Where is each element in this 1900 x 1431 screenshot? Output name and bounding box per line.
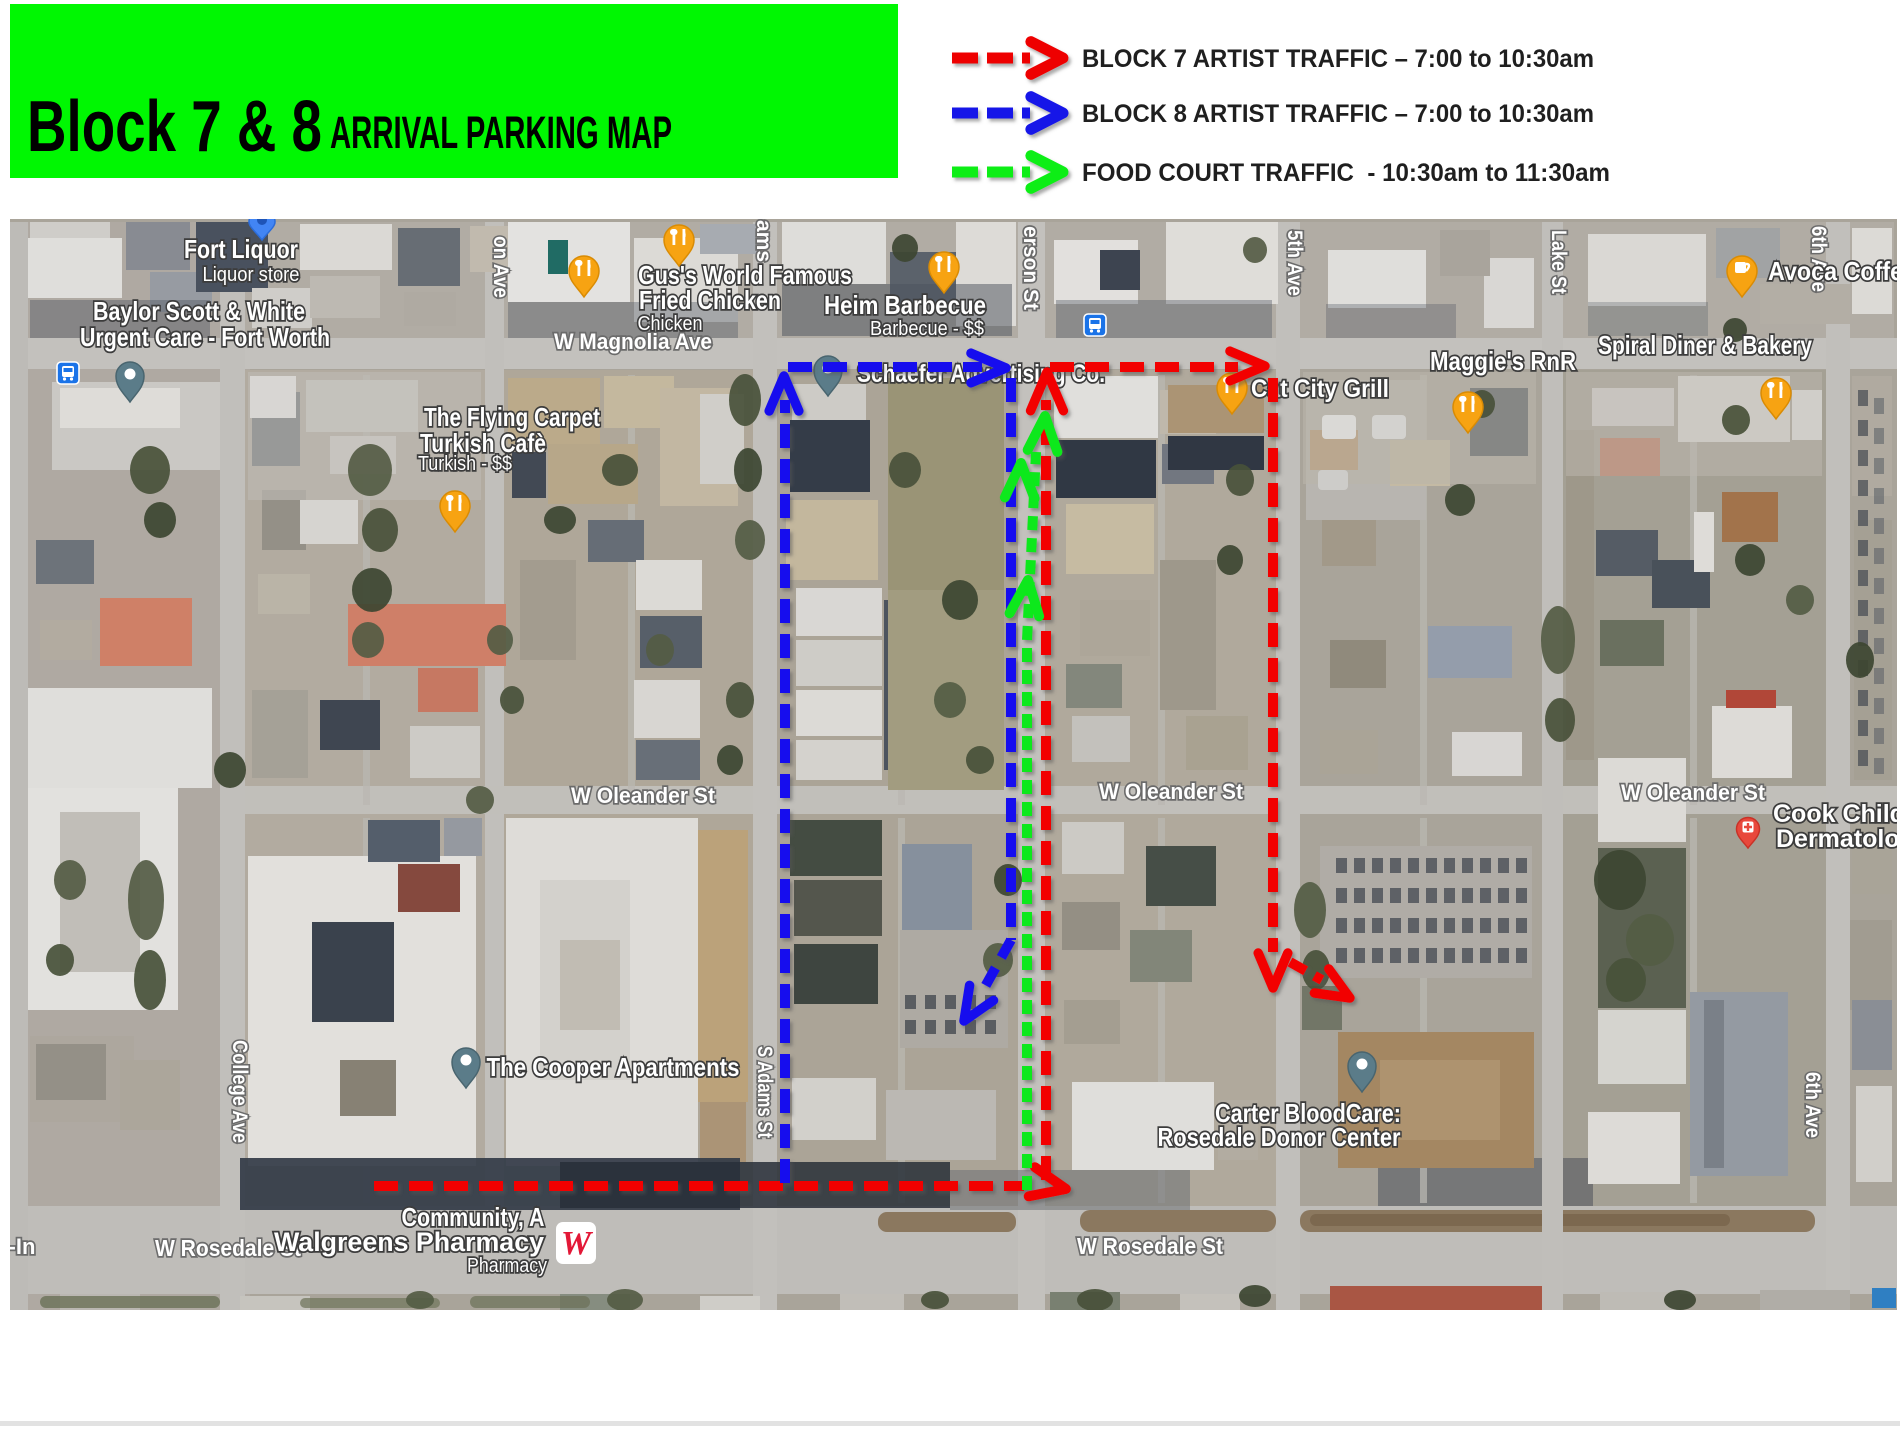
svg-text:Avoca Coffee: Avoca Coffee bbox=[1768, 256, 1900, 286]
svg-text:W Oleander St: W Oleander St bbox=[1099, 779, 1244, 804]
svg-text:Block 7 & 8: Block 7 & 8 bbox=[27, 87, 322, 167]
svg-text:Urgent Care - Fort Worth: Urgent Care - Fort Worth bbox=[80, 322, 330, 352]
svg-text:Heim Barbecue: Heim Barbecue bbox=[824, 290, 986, 320]
svg-text:FOOD COURT TRAFFIC - 10:30am: FOOD COURT TRAFFIC - 10:30am to 11:30am bbox=[1082, 159, 1610, 187]
svg-text:BLOCK 7 ARTIST TRAFFIC – 7:00: BLOCK 7 ARTIST TRAFFIC – 7:00 to 10:30am bbox=[1082, 45, 1594, 73]
svg-text:erson St: erson St bbox=[1019, 226, 1042, 310]
svg-text:ams: ams bbox=[752, 220, 775, 262]
svg-text:Fried Chicken: Fried Chicken bbox=[639, 285, 781, 315]
svg-text:BLOCK 8 ARTIST TRAFFIC – 7:00: BLOCK 8 ARTIST TRAFFIC – 7:00 to 10:30am bbox=[1082, 100, 1594, 128]
svg-text:W Oleander St: W Oleander St bbox=[571, 783, 716, 808]
svg-text:W: W bbox=[561, 1225, 594, 1262]
svg-text:Lake St: Lake St bbox=[1547, 230, 1570, 294]
svg-text:Turkish - $$: Turkish - $$ bbox=[418, 453, 512, 475]
svg-text:5th Ave: 5th Ave bbox=[1283, 230, 1306, 296]
svg-text:on Ave: on Ave bbox=[489, 236, 512, 298]
svg-text:Spiral Diner & Bakery: Spiral Diner & Bakery bbox=[1598, 330, 1812, 360]
svg-text:W Oleander St: W Oleander St bbox=[1621, 780, 1766, 805]
svg-text:Liquor store: Liquor store bbox=[203, 264, 300, 286]
svg-text:College Ave: College Ave bbox=[228, 1040, 251, 1143]
svg-text:ARRIVAL PARKING MAP: ARRIVAL PARKING MAP bbox=[330, 107, 672, 158]
svg-text:Walgreens Pharmacy: Walgreens Pharmacy bbox=[274, 1227, 544, 1257]
svg-text:Chicken: Chicken bbox=[638, 313, 703, 335]
svg-text:The Cooper Apartments: The Cooper Apartments bbox=[487, 1052, 740, 1082]
svg-text:Barbecue - $$: Barbecue - $$ bbox=[870, 318, 984, 340]
svg-text:Maggie's RnR: Maggie's RnR bbox=[1430, 346, 1576, 376]
svg-text:Rosedale Donor Center: Rosedale Donor Center bbox=[1158, 1122, 1401, 1152]
svg-text:6th Ave: 6th Ave bbox=[1801, 1072, 1824, 1138]
svg-text:Pharmacy: Pharmacy bbox=[467, 1255, 547, 1277]
svg-text:Dermatolog: Dermatolog bbox=[1776, 825, 1900, 853]
svg-text:-In: -In bbox=[9, 1234, 36, 1259]
svg-text:Fort Liquor: Fort Liquor bbox=[184, 234, 298, 264]
svg-text:W Rosedale St: W Rosedale St bbox=[1077, 1233, 1223, 1259]
svg-text:S Adams St: S Adams St bbox=[753, 1046, 776, 1138]
svg-text:Cook Childre: Cook Childre bbox=[1773, 800, 1900, 828]
